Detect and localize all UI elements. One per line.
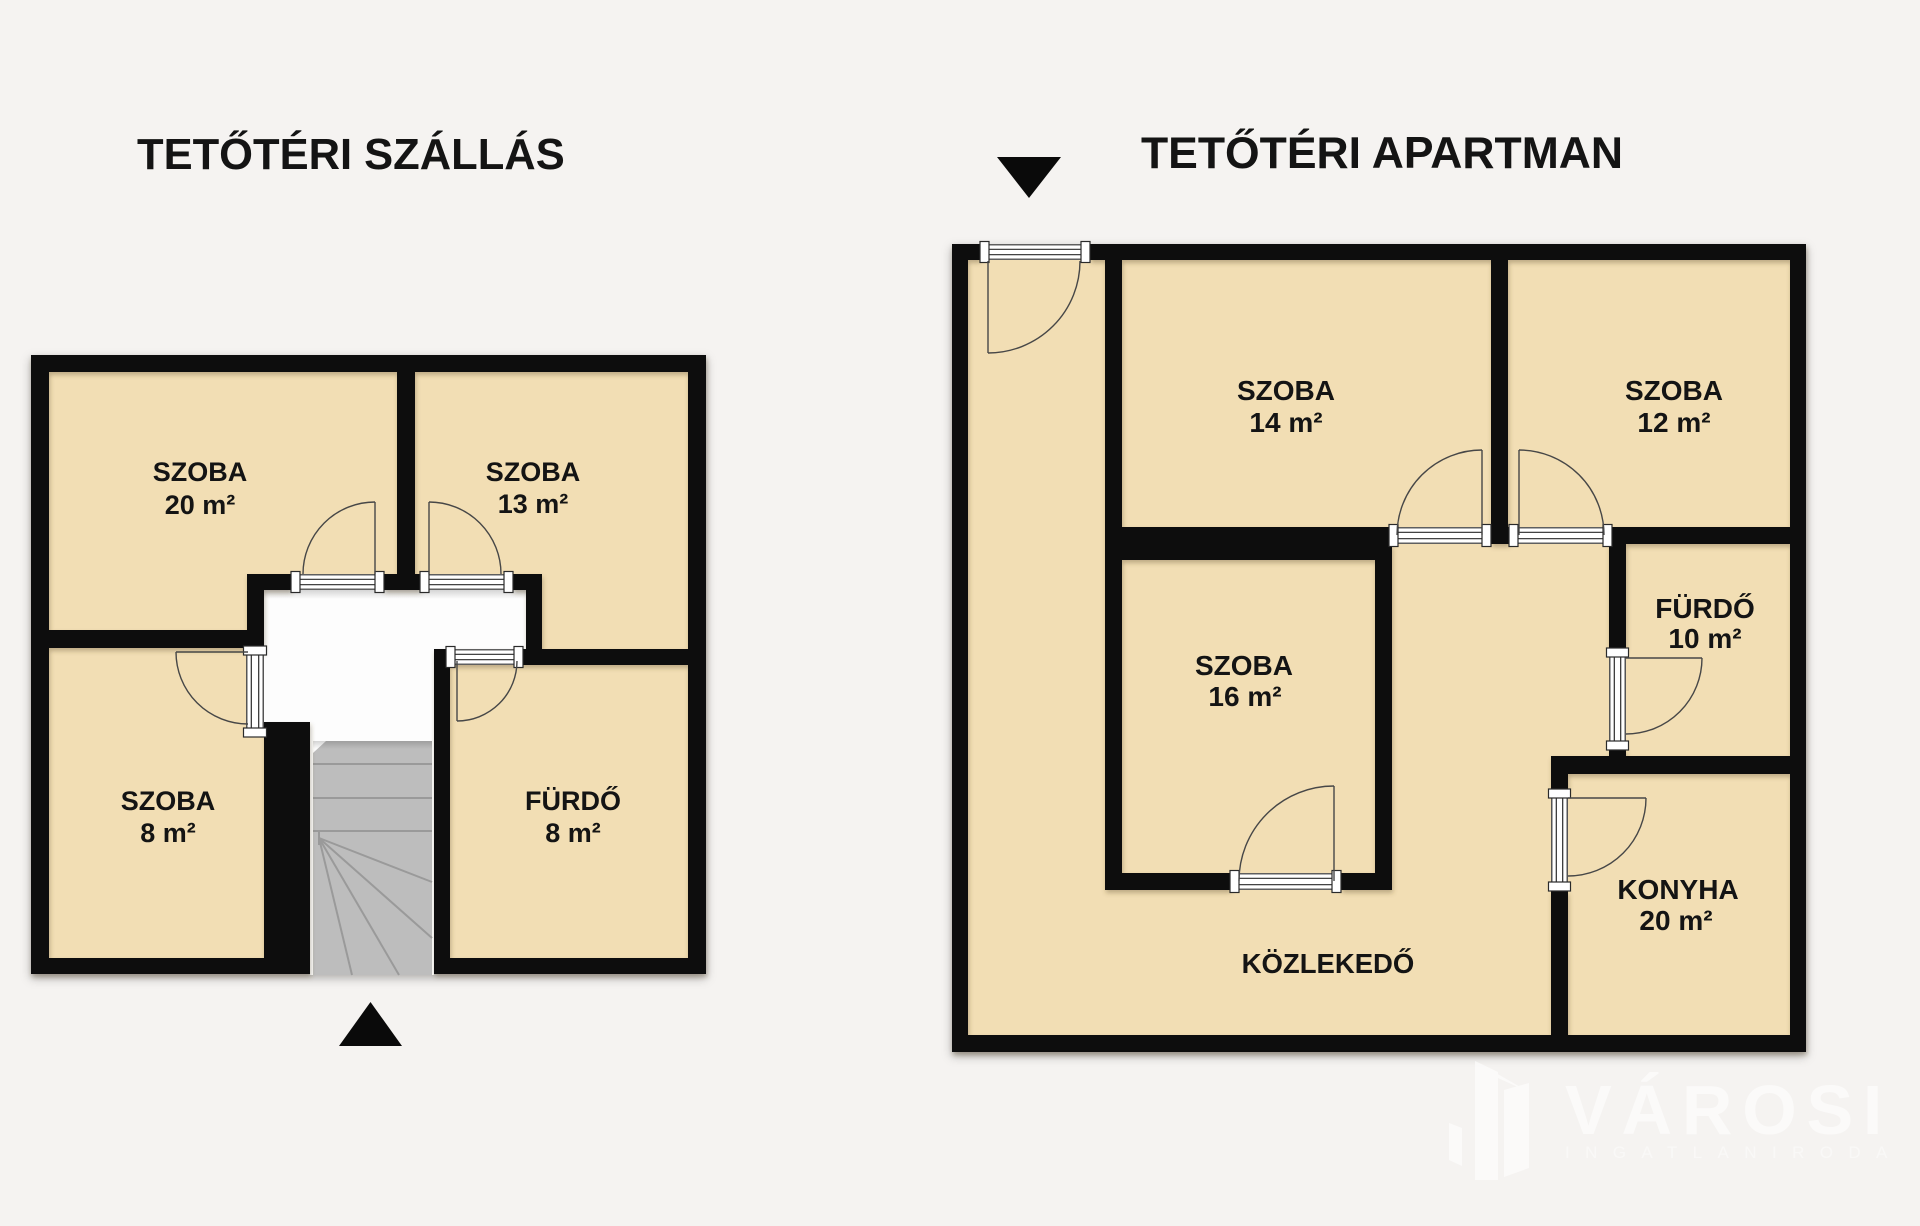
svg-text:14 m²: 14 m² bbox=[1249, 407, 1322, 438]
svg-text:SZOBA: SZOBA bbox=[153, 457, 248, 487]
svg-text:8 m²: 8 m² bbox=[140, 818, 196, 848]
svg-text:TETŐTÉRI APARTMAN: TETŐTÉRI APARTMAN bbox=[1141, 128, 1623, 178]
svg-text:20 m²: 20 m² bbox=[1639, 905, 1712, 936]
svg-text:13 m²: 13 m² bbox=[498, 489, 569, 519]
svg-text:KÖZLEKEDŐ: KÖZLEKEDŐ bbox=[1242, 948, 1415, 979]
svg-text:20 m²: 20 m² bbox=[165, 490, 236, 520]
svg-text:SZOBA: SZOBA bbox=[1195, 650, 1293, 681]
svg-text:8 m²: 8 m² bbox=[545, 818, 601, 848]
svg-text:TETŐTÉRI SZÁLLÁS: TETŐTÉRI SZÁLLÁS bbox=[137, 129, 565, 179]
svg-text:16 m²: 16 m² bbox=[1208, 681, 1281, 712]
svg-text:10 m²: 10 m² bbox=[1668, 623, 1741, 654]
svg-text:12 m²: 12 m² bbox=[1637, 407, 1710, 438]
svg-text:SZOBA: SZOBA bbox=[121, 786, 216, 816]
svg-text:SZOBA: SZOBA bbox=[1625, 375, 1723, 406]
svg-text:INGATLANIRODA: INGATLANIRODA bbox=[1565, 1143, 1903, 1162]
svg-text:SZOBA: SZOBA bbox=[1237, 375, 1335, 406]
svg-text:SZOBA: SZOBA bbox=[486, 457, 581, 487]
svg-text:VÁROSI: VÁROSI bbox=[1565, 1071, 1892, 1149]
svg-text:FÜRDŐ: FÜRDŐ bbox=[525, 785, 621, 816]
svg-text:KONYHA: KONYHA bbox=[1617, 874, 1738, 905]
svg-text:FÜRDŐ: FÜRDŐ bbox=[1655, 593, 1755, 624]
